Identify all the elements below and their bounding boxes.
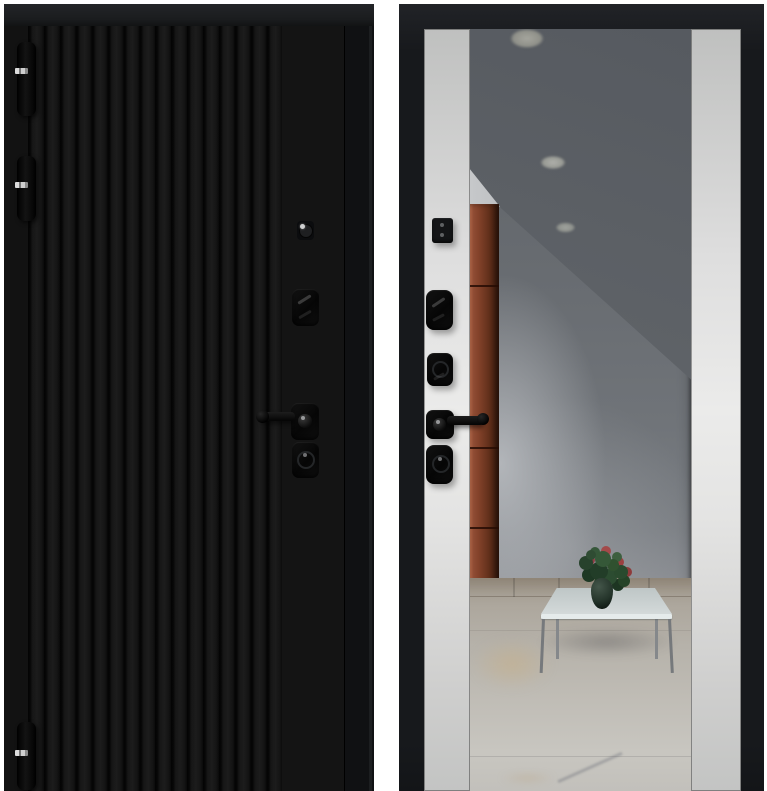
thumbturn-dot — [303, 453, 307, 457]
right-trim-panel — [691, 29, 741, 791]
hinge-top — [17, 42, 36, 116]
hinge-pin-icon — [15, 750, 28, 756]
metal-glint — [298, 310, 312, 320]
plant-foliage — [586, 550, 596, 560]
cabinet-seam — [470, 285, 499, 287]
hinge-middle — [17, 156, 36, 221]
recessed-light-2 — [537, 154, 569, 171]
lower-escutcheon — [292, 442, 319, 478]
vertical-slat-panel — [28, 26, 282, 791]
cabinet-seam — [470, 447, 499, 449]
hinge-pin-icon — [15, 68, 28, 74]
cylinder-highlight — [300, 224, 305, 229]
deadbolt-lower — [426, 445, 453, 484]
product-photo — [0, 0, 767, 791]
cabinet-seam — [470, 527, 499, 529]
door-interior-side — [399, 4, 764, 791]
glass-table-edge — [541, 614, 672, 619]
handle-highlight — [436, 420, 440, 424]
latch-dot — [440, 223, 444, 227]
metal-glint — [431, 297, 445, 308]
deadbolt-middle — [427, 353, 453, 386]
door-handle-rose — [291, 403, 319, 440]
upper-escutcheon — [292, 289, 319, 326]
night-latch-cover — [432, 218, 453, 243]
handle-end-cap — [256, 410, 269, 423]
thumbturn-dot — [438, 457, 442, 461]
floor-marble-streak — [500, 773, 555, 783]
table-leg-back-right — [655, 617, 658, 659]
handle-highlight — [301, 416, 305, 420]
recessed-light-3 — [553, 221, 578, 234]
metal-glint — [432, 313, 445, 322]
handle-end-cap — [477, 413, 489, 425]
lock-cylinder — [297, 221, 314, 240]
hinge-pin-icon — [15, 182, 28, 188]
latch-dot — [440, 233, 444, 237]
handle-hub — [298, 414, 312, 428]
door-exterior-side — [4, 4, 374, 791]
door-top-rail — [4, 4, 374, 27]
full-length-mirror — [470, 29, 691, 791]
deadbolt-upper — [426, 290, 453, 330]
table-leg-back-left — [556, 617, 559, 659]
hinge-bottom — [17, 722, 36, 790]
floor-tile-seam — [470, 756, 691, 757]
reflected-brown-cabinet — [470, 204, 499, 612]
door-edge-highlight — [369, 26, 372, 791]
door-left-stile — [4, 26, 28, 791]
metal-glint — [297, 294, 311, 304]
